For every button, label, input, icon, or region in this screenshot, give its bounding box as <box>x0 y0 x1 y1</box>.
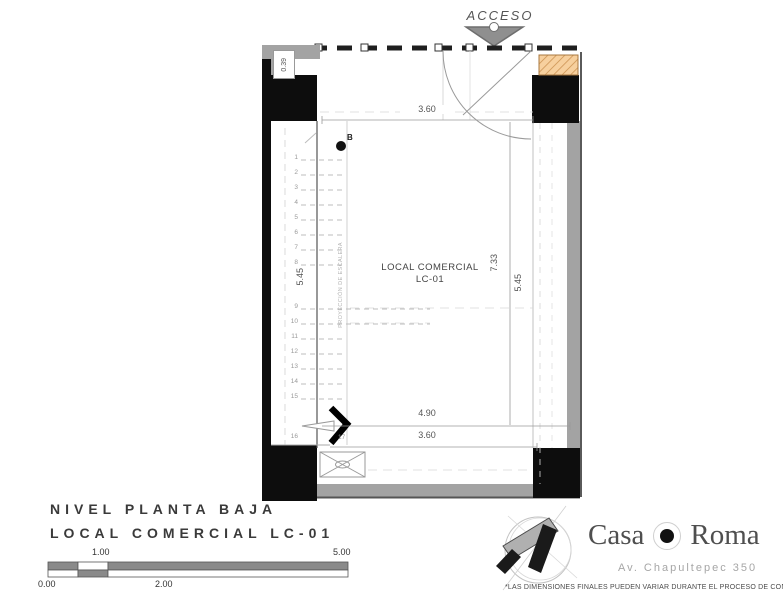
sheet-title-unit: LOCAL COMERCIAL LC-01 <box>50 525 334 541</box>
dim-wall-offset-box: 0.39 <box>273 50 295 79</box>
dimensions-disclaimer: *LAS DIMENSIONES FINALES PUEDEN VARIAR D… <box>505 584 783 591</box>
stair-step-number: 6 <box>286 230 298 237</box>
shaft-x-box <box>320 452 365 477</box>
dim-interior-height: 7.33 <box>490 252 499 274</box>
point-b-label: B <box>347 133 353 142</box>
dim-bottom-outer: 4.90 <box>400 409 454 418</box>
room-name: LOCAL COMERCIAL <box>375 262 485 274</box>
stair-step-number: 9 <box>286 304 298 311</box>
stair-step-number: 15 <box>286 394 298 401</box>
dim-bottom-inner: 3.60 <box>400 431 454 440</box>
dim-wall-offset: 0.39 <box>281 58 288 72</box>
stair-step-number: 2 <box>286 170 298 177</box>
drawing-sheet: ACCESO 0.39 3.60 B 1 2 3 4 5 6 7 8 9 10 … <box>0 0 783 595</box>
brand-dot-icon <box>653 522 681 550</box>
stair-step-number: 14 <box>286 379 298 386</box>
stair-step-number: 11 <box>286 334 298 341</box>
stair-step-number: 12 <box>286 349 298 356</box>
stair-step-number: 5 <box>286 215 298 222</box>
room-label: LOCAL COMERCIAL LC-01 <box>375 262 485 287</box>
stair-step-number: 7 <box>286 245 298 252</box>
stair-step-number: 13 <box>286 364 298 371</box>
hatched-infill <box>539 55 578 75</box>
scale-label-0: 0.00 <box>38 580 56 589</box>
stair-step-number: 17 <box>338 435 350 442</box>
access-label: ACCESO <box>465 8 535 23</box>
room-code: LC-01 <box>375 274 485 286</box>
dim-right-height: 5.45 <box>514 272 523 294</box>
stair-projection-note: PROYECCIÓN DE ESCALERA <box>338 242 344 328</box>
brand-wordmark: Casa Roma <box>588 521 760 550</box>
brand-logo <box>496 506 577 590</box>
stair-step-number: 3 <box>286 185 298 192</box>
stair-step-number: 10 <box>286 319 298 326</box>
access-arrow-icon <box>466 23 523 47</box>
scale-label-5: 5.00 <box>333 548 351 557</box>
dim-top-width: 3.60 <box>400 105 454 114</box>
scale-label-1: 1.00 <box>92 548 110 557</box>
point-b-marker <box>336 141 346 151</box>
brand-word-roma: Roma <box>690 521 759 550</box>
brand-word-casa: Casa <box>588 521 644 550</box>
door-swing <box>443 51 531 139</box>
scale-label-2: 2.00 <box>155 580 173 589</box>
scale-bar <box>48 562 348 577</box>
brand-address: Av. Chapultepec 350 <box>618 562 757 574</box>
dim-left-height: 5.45 <box>296 266 305 288</box>
stair-step-number: 16 <box>286 434 298 441</box>
stair-step-number: 1 <box>286 155 298 162</box>
stair-step-number: 4 <box>286 200 298 207</box>
sheet-title-level: NIVEL PLANTA BAJA <box>50 501 277 517</box>
